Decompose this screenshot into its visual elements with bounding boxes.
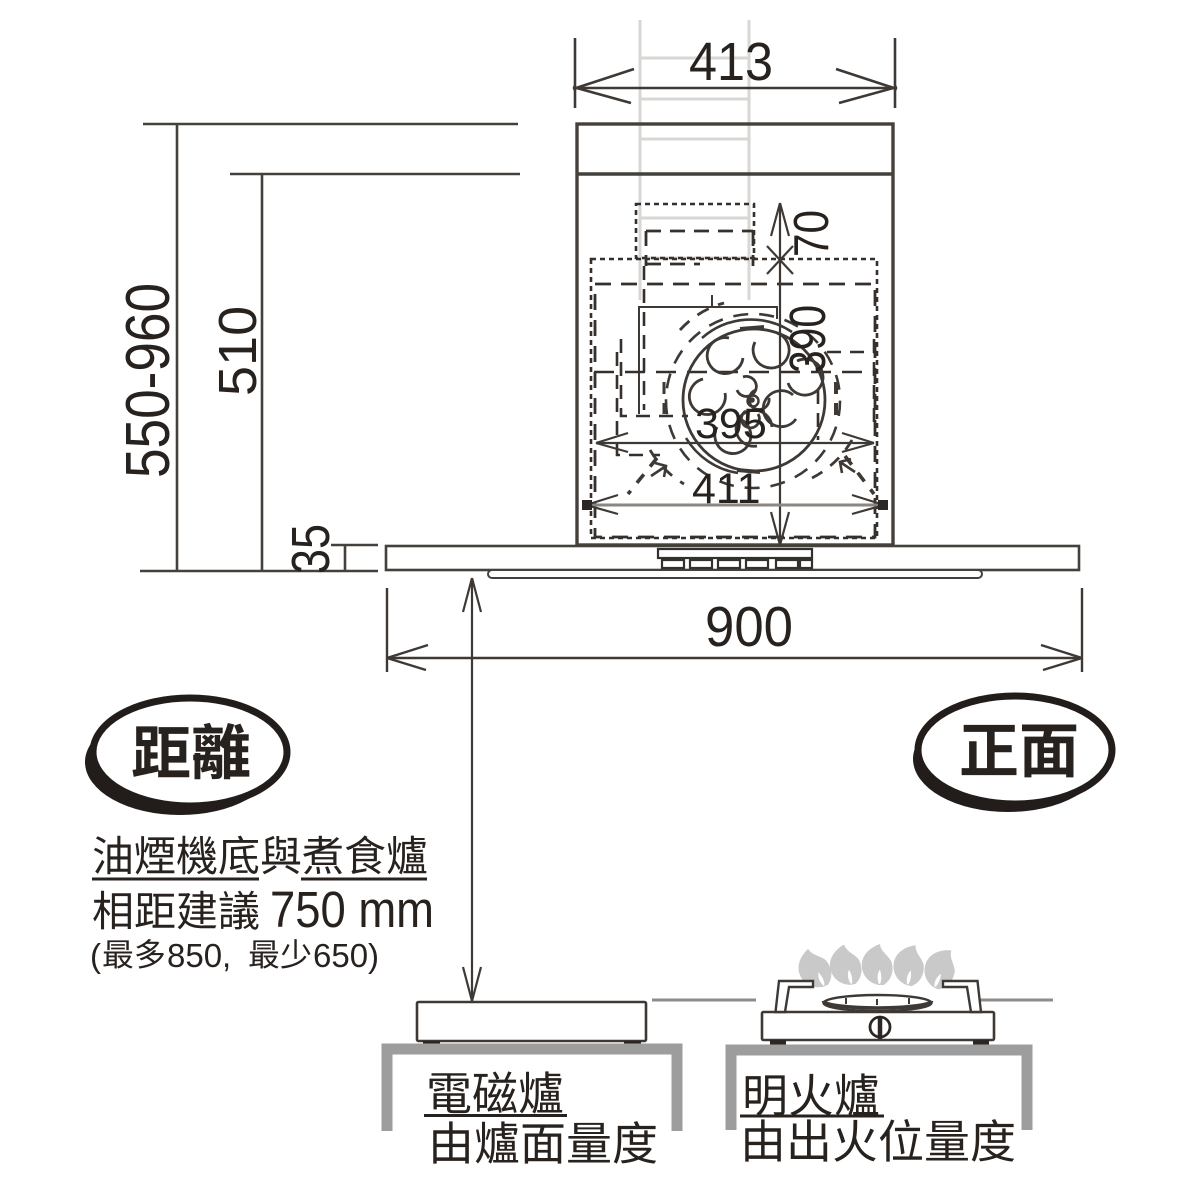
svg-text:35: 35 [281,524,341,574]
svg-text:510: 510 [208,306,268,396]
svg-text:850,: 850, [167,937,231,974]
svg-text:411: 411 [692,465,761,513]
svg-text:413: 413 [689,32,773,92]
svg-text:750 mm: 750 mm [270,881,434,938]
svg-text:395: 395 [695,400,767,448]
svg-text:70: 70 [785,210,839,257]
svg-text:(: ( [90,937,101,974]
svg-text:900: 900 [705,595,793,659]
svg-text:390: 390 [779,305,836,373]
svg-text:650): 650) [313,937,379,974]
svg-text:550-960: 550-960 [114,283,183,478]
